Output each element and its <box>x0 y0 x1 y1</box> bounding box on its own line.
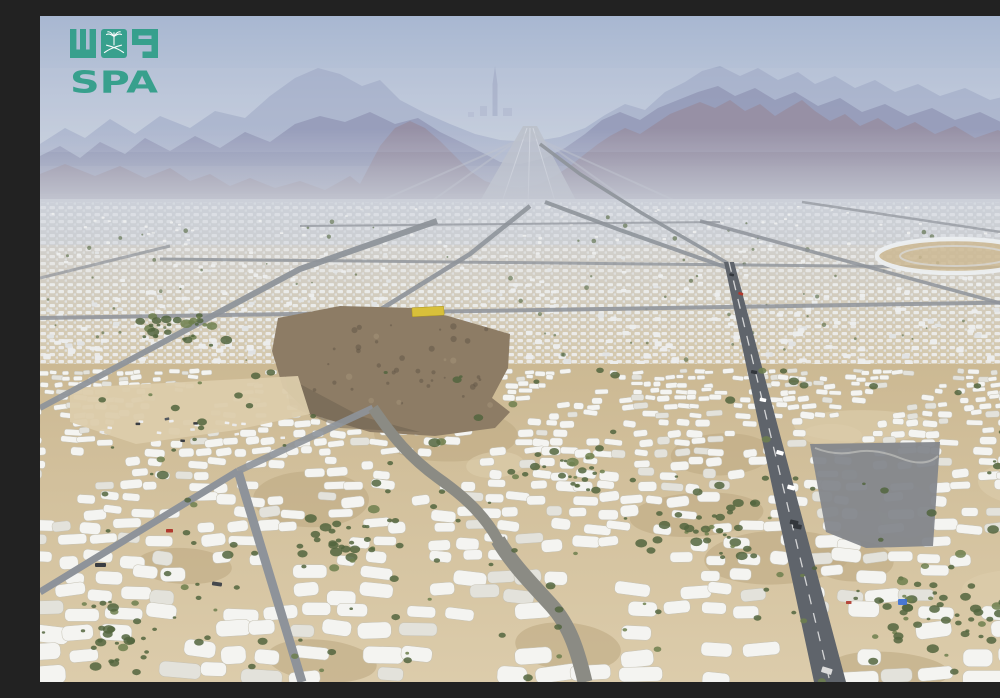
tree <box>768 517 772 520</box>
tree <box>509 401 518 407</box>
tree <box>230 542 238 548</box>
tent <box>680 585 712 600</box>
tent <box>907 404 918 411</box>
city-block <box>846 212 849 214</box>
tent <box>248 619 275 635</box>
city-block <box>68 348 76 354</box>
city-block <box>728 208 731 210</box>
tent <box>829 391 841 396</box>
tree <box>251 551 258 556</box>
rock-speckle <box>427 384 431 388</box>
tree <box>92 276 94 278</box>
tent <box>982 427 994 433</box>
city-block <box>994 308 1000 313</box>
tree <box>167 323 171 326</box>
aerial-photo-mina: واس SPA <box>40 16 1000 682</box>
tree <box>222 551 233 559</box>
rock-speckle <box>351 388 354 391</box>
tent <box>69 648 99 663</box>
tent <box>73 376 82 381</box>
tent <box>907 413 918 420</box>
tree <box>880 487 889 493</box>
city-block <box>155 310 161 314</box>
tent <box>216 494 236 505</box>
dark-bus <box>95 563 106 567</box>
tree <box>758 368 766 374</box>
city-block <box>95 252 99 255</box>
tree <box>903 617 908 621</box>
tent <box>399 623 437 636</box>
tree <box>82 602 87 606</box>
tent <box>735 413 751 420</box>
tree <box>950 669 959 675</box>
tent <box>97 439 113 445</box>
city-block <box>123 220 126 222</box>
tent <box>175 471 192 479</box>
tree <box>246 403 253 408</box>
tent <box>783 395 796 402</box>
tent <box>569 507 587 516</box>
tent <box>337 603 368 617</box>
city-block <box>259 220 262 222</box>
tent <box>377 667 403 682</box>
tree <box>200 269 203 272</box>
tent <box>934 388 943 394</box>
rock-speckle <box>377 363 381 367</box>
tent <box>310 419 320 425</box>
city-block <box>523 235 527 237</box>
tent <box>197 522 215 533</box>
rock-speckle <box>375 340 378 343</box>
tent <box>65 609 99 622</box>
tree <box>368 547 375 552</box>
city-block <box>95 348 102 352</box>
city-block <box>115 298 121 302</box>
tree <box>152 628 157 631</box>
city-block <box>781 339 788 344</box>
tree <box>750 500 760 507</box>
city-block <box>191 230 194 232</box>
tree <box>727 510 733 514</box>
tent <box>938 411 952 418</box>
tree <box>245 359 247 361</box>
tent <box>939 439 959 446</box>
city-block <box>280 232 283 234</box>
tree <box>793 476 799 480</box>
tree <box>330 220 335 225</box>
tree <box>577 240 579 242</box>
city-block <box>526 331 533 335</box>
city-block <box>606 340 613 344</box>
tent <box>133 369 140 374</box>
rock-speckle <box>444 358 447 361</box>
rock-speckle <box>390 324 392 326</box>
tree <box>703 528 707 531</box>
tree <box>266 369 275 375</box>
city-block <box>101 339 108 343</box>
city-block <box>896 287 901 290</box>
tent <box>706 410 723 417</box>
tree <box>150 473 154 476</box>
city-block <box>976 325 983 329</box>
city-block <box>595 236 599 238</box>
city-block <box>159 305 165 309</box>
city-block <box>654 317 660 321</box>
tree <box>929 582 937 588</box>
tree <box>948 565 954 570</box>
tree <box>675 512 683 518</box>
tree <box>968 583 976 589</box>
city-block <box>799 358 807 362</box>
city-block <box>538 241 542 244</box>
tent <box>975 397 986 403</box>
tree <box>336 539 342 543</box>
tree <box>301 565 306 569</box>
tent <box>619 375 626 380</box>
tent <box>518 381 529 386</box>
tent <box>95 571 123 585</box>
tent <box>861 371 869 376</box>
tree <box>709 525 715 529</box>
city-block <box>345 215 348 217</box>
city-block <box>290 278 295 282</box>
city-block <box>563 359 571 365</box>
tent <box>79 522 101 535</box>
tree <box>141 234 143 236</box>
city-block <box>808 297 814 300</box>
tree <box>152 258 156 262</box>
tent <box>676 418 690 426</box>
city-block <box>879 224 882 226</box>
tree <box>456 519 461 523</box>
rock-speckle <box>396 400 401 405</box>
city-block <box>152 232 155 234</box>
city-block <box>120 279 125 282</box>
tent <box>260 437 275 446</box>
tree <box>522 472 528 477</box>
tent <box>670 552 693 563</box>
tree <box>941 617 951 624</box>
tree <box>161 316 172 324</box>
tree <box>311 531 321 538</box>
tent <box>294 420 311 428</box>
tent <box>527 418 541 426</box>
tent <box>722 368 734 374</box>
tree <box>453 376 462 383</box>
tent <box>434 523 455 532</box>
tent <box>598 510 618 520</box>
tent <box>429 550 452 563</box>
tent <box>536 430 548 436</box>
circular-interchange <box>877 239 1000 273</box>
tree <box>310 414 316 418</box>
tree <box>98 626 105 631</box>
tent <box>724 431 735 437</box>
tent <box>179 448 195 457</box>
tree <box>554 334 557 337</box>
tent <box>973 447 993 456</box>
tree <box>96 335 99 338</box>
city-block <box>730 315 736 319</box>
tent <box>40 382 49 387</box>
tree <box>705 532 709 535</box>
city-block <box>504 255 508 257</box>
tent <box>850 390 862 396</box>
tree <box>204 635 211 640</box>
city-block <box>928 319 934 324</box>
city-block <box>843 354 851 358</box>
tree <box>87 246 91 250</box>
tent <box>125 456 141 467</box>
city-block <box>209 338 216 342</box>
tree <box>683 259 686 262</box>
tree <box>488 502 491 504</box>
city-block <box>744 274 749 277</box>
tent <box>470 584 500 598</box>
tent <box>304 468 324 477</box>
tent <box>619 667 663 682</box>
city-block <box>208 269 213 272</box>
tree <box>184 498 191 503</box>
city-block <box>187 239 191 241</box>
city-block <box>610 317 616 322</box>
tent <box>688 376 696 380</box>
city-block <box>561 216 564 218</box>
tent <box>856 377 866 382</box>
tent <box>429 582 455 596</box>
tree <box>800 618 807 623</box>
parked-car <box>190 428 195 431</box>
tent <box>60 412 72 418</box>
tent <box>939 384 947 388</box>
tree <box>446 256 448 258</box>
tent <box>573 496 599 506</box>
tent <box>77 436 96 443</box>
parked-car <box>157 431 162 434</box>
tent <box>343 482 363 491</box>
tent <box>489 469 502 480</box>
city-block <box>900 308 906 311</box>
city-block <box>847 242 851 245</box>
tree <box>183 228 188 233</box>
tree <box>600 470 605 474</box>
tree <box>164 571 172 576</box>
city-block <box>797 206 800 207</box>
tent <box>698 396 709 401</box>
tree <box>523 674 533 681</box>
tree <box>727 313 731 317</box>
tent <box>62 376 70 380</box>
tree <box>659 521 670 529</box>
city-block <box>824 295 830 298</box>
tent <box>290 624 314 637</box>
tree <box>221 336 233 344</box>
parked-car <box>280 436 285 439</box>
tree <box>574 484 579 488</box>
tent <box>780 390 789 397</box>
tent <box>40 371 49 376</box>
city-block <box>762 221 765 223</box>
blue-tarp <box>898 599 907 605</box>
city-block <box>621 289 626 293</box>
tent <box>852 397 867 404</box>
rock-speckle <box>484 327 488 331</box>
tent <box>655 413 669 419</box>
city-block <box>216 348 224 352</box>
tree <box>384 371 388 374</box>
tree <box>944 654 948 657</box>
tent <box>856 570 887 584</box>
tree <box>197 418 207 425</box>
tree <box>606 215 610 219</box>
city-block <box>478 257 482 259</box>
rock-speckle <box>477 375 481 379</box>
city-block <box>759 241 763 243</box>
tent <box>877 420 887 428</box>
tree <box>696 515 702 519</box>
rock-speckle <box>399 355 405 361</box>
tree <box>736 552 748 560</box>
city-block <box>598 313 604 318</box>
city-block <box>968 277 973 281</box>
city-block <box>902 354 910 359</box>
tent <box>903 370 914 375</box>
tent <box>621 625 651 640</box>
city-block <box>858 347 865 351</box>
city-block <box>907 232 910 235</box>
tree <box>327 235 331 239</box>
tree <box>624 517 628 520</box>
tent <box>638 467 655 476</box>
tree <box>152 317 162 324</box>
tree <box>42 631 45 633</box>
city-block <box>249 302 255 305</box>
tent <box>953 376 965 381</box>
city-block <box>693 231 696 233</box>
tent <box>787 368 797 373</box>
tree <box>684 357 689 362</box>
city-block <box>987 355 995 361</box>
tent <box>502 394 515 401</box>
tree <box>731 343 734 346</box>
city-block <box>438 241 442 244</box>
tree <box>955 550 966 558</box>
rock-speckle <box>346 374 352 380</box>
city-block <box>919 223 922 225</box>
city-block <box>976 283 981 287</box>
rock-speckle <box>357 325 362 330</box>
tree <box>589 466 594 470</box>
city-block <box>263 275 268 279</box>
tent <box>925 431 939 439</box>
parked-car <box>241 423 246 426</box>
tree <box>320 523 332 531</box>
rock-speckle <box>487 402 493 408</box>
tree <box>655 609 662 614</box>
city-block <box>314 267 319 270</box>
city-block <box>923 298 929 301</box>
tree <box>921 563 929 569</box>
tree <box>97 639 102 643</box>
tent <box>461 482 475 492</box>
tree <box>153 334 159 338</box>
city-block <box>309 293 315 297</box>
tent <box>546 420 557 426</box>
tree <box>355 273 357 275</box>
tent <box>227 520 249 533</box>
tent <box>573 402 583 409</box>
tree <box>519 299 523 303</box>
tent <box>83 370 90 375</box>
city-block <box>796 332 803 336</box>
tent <box>994 479 1000 489</box>
tent <box>553 429 568 437</box>
paved-lot <box>810 442 940 548</box>
city-block <box>145 226 148 228</box>
city-block <box>415 208 418 210</box>
tent <box>792 418 803 425</box>
city-block <box>962 277 967 281</box>
tent <box>971 409 983 415</box>
tree <box>119 331 122 334</box>
tent <box>657 436 670 444</box>
tent <box>829 404 842 410</box>
tree <box>428 438 440 447</box>
city-block <box>677 298 683 301</box>
tree <box>986 617 993 622</box>
tree <box>562 353 566 357</box>
tree <box>815 295 819 299</box>
rock-speckle <box>419 379 423 383</box>
tent <box>797 395 809 402</box>
tent <box>188 460 208 469</box>
tent <box>595 389 609 394</box>
city-block <box>972 309 978 313</box>
tree <box>723 533 727 536</box>
tree <box>181 584 189 590</box>
tent <box>117 371 124 376</box>
tent <box>254 649 280 666</box>
tree <box>508 276 513 281</box>
tree <box>373 227 375 229</box>
tent <box>546 506 561 516</box>
tree <box>914 582 921 587</box>
city-block <box>84 226 87 228</box>
tree <box>390 575 399 582</box>
city-block <box>57 253 61 256</box>
tent <box>748 456 767 465</box>
city-block <box>539 293 545 296</box>
tent <box>963 670 1000 682</box>
tree <box>567 458 579 467</box>
tent <box>695 419 710 426</box>
city-block <box>622 271 627 274</box>
tree <box>834 275 837 278</box>
tree <box>654 647 662 652</box>
tree <box>939 595 948 601</box>
tent <box>632 375 642 380</box>
tree <box>610 430 616 435</box>
city-block <box>249 270 254 274</box>
tent <box>925 403 936 409</box>
tent <box>132 468 149 477</box>
tent <box>302 602 331 615</box>
tent <box>677 383 687 388</box>
city-block <box>609 289 614 292</box>
tree <box>107 603 119 611</box>
tent <box>880 668 912 682</box>
tree <box>590 275 592 277</box>
